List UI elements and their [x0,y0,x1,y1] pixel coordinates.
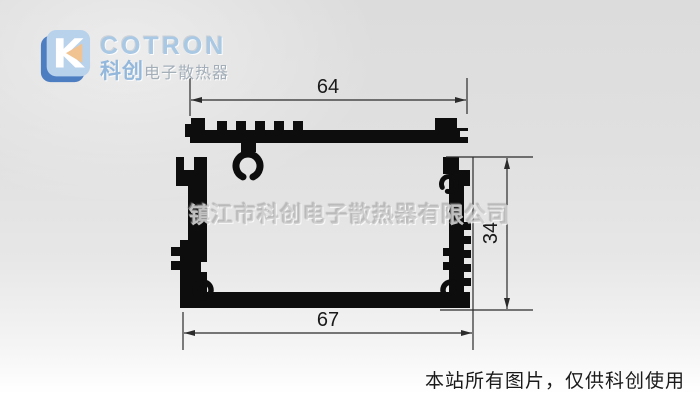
page-canvas: 64 67 34 镇江市科创电子散热器有限公司 K COTRON [0,0,700,419]
dim-bottom-label: 67 [317,309,339,331]
lid-cross-section [185,118,468,152]
logo-text: COTRON 科创 电子散热器 [100,34,229,82]
dim-top-arrow-left [191,97,202,103]
dim-side-label: 34 [480,222,502,244]
brand-subtitle-rest: 电子散热器 [144,66,229,82]
logo-lockup: K COTRON 科创 电子散热器 [38,28,229,88]
footer-note: 本站所有图片，仅供科创使用 [425,366,685,393]
brand-name: COTRON [100,34,229,59]
lid-screw-clip [236,154,260,177]
dim-side-arrow-top [504,158,510,169]
body-cross-section [171,157,471,308]
dim-bottom-arrow-left [184,330,195,336]
dim-top-label: 64 [317,76,339,98]
dim-top-arrow-right [455,97,466,103]
brand-subtitle-bold: 科创 [100,61,144,82]
dim-bottom-arrow-right [461,330,472,336]
brand-subtitle: 科创 电子散热器 [100,61,229,82]
k-logo-icon: K [38,28,92,88]
dim-side-arrow-bottom [504,298,510,309]
